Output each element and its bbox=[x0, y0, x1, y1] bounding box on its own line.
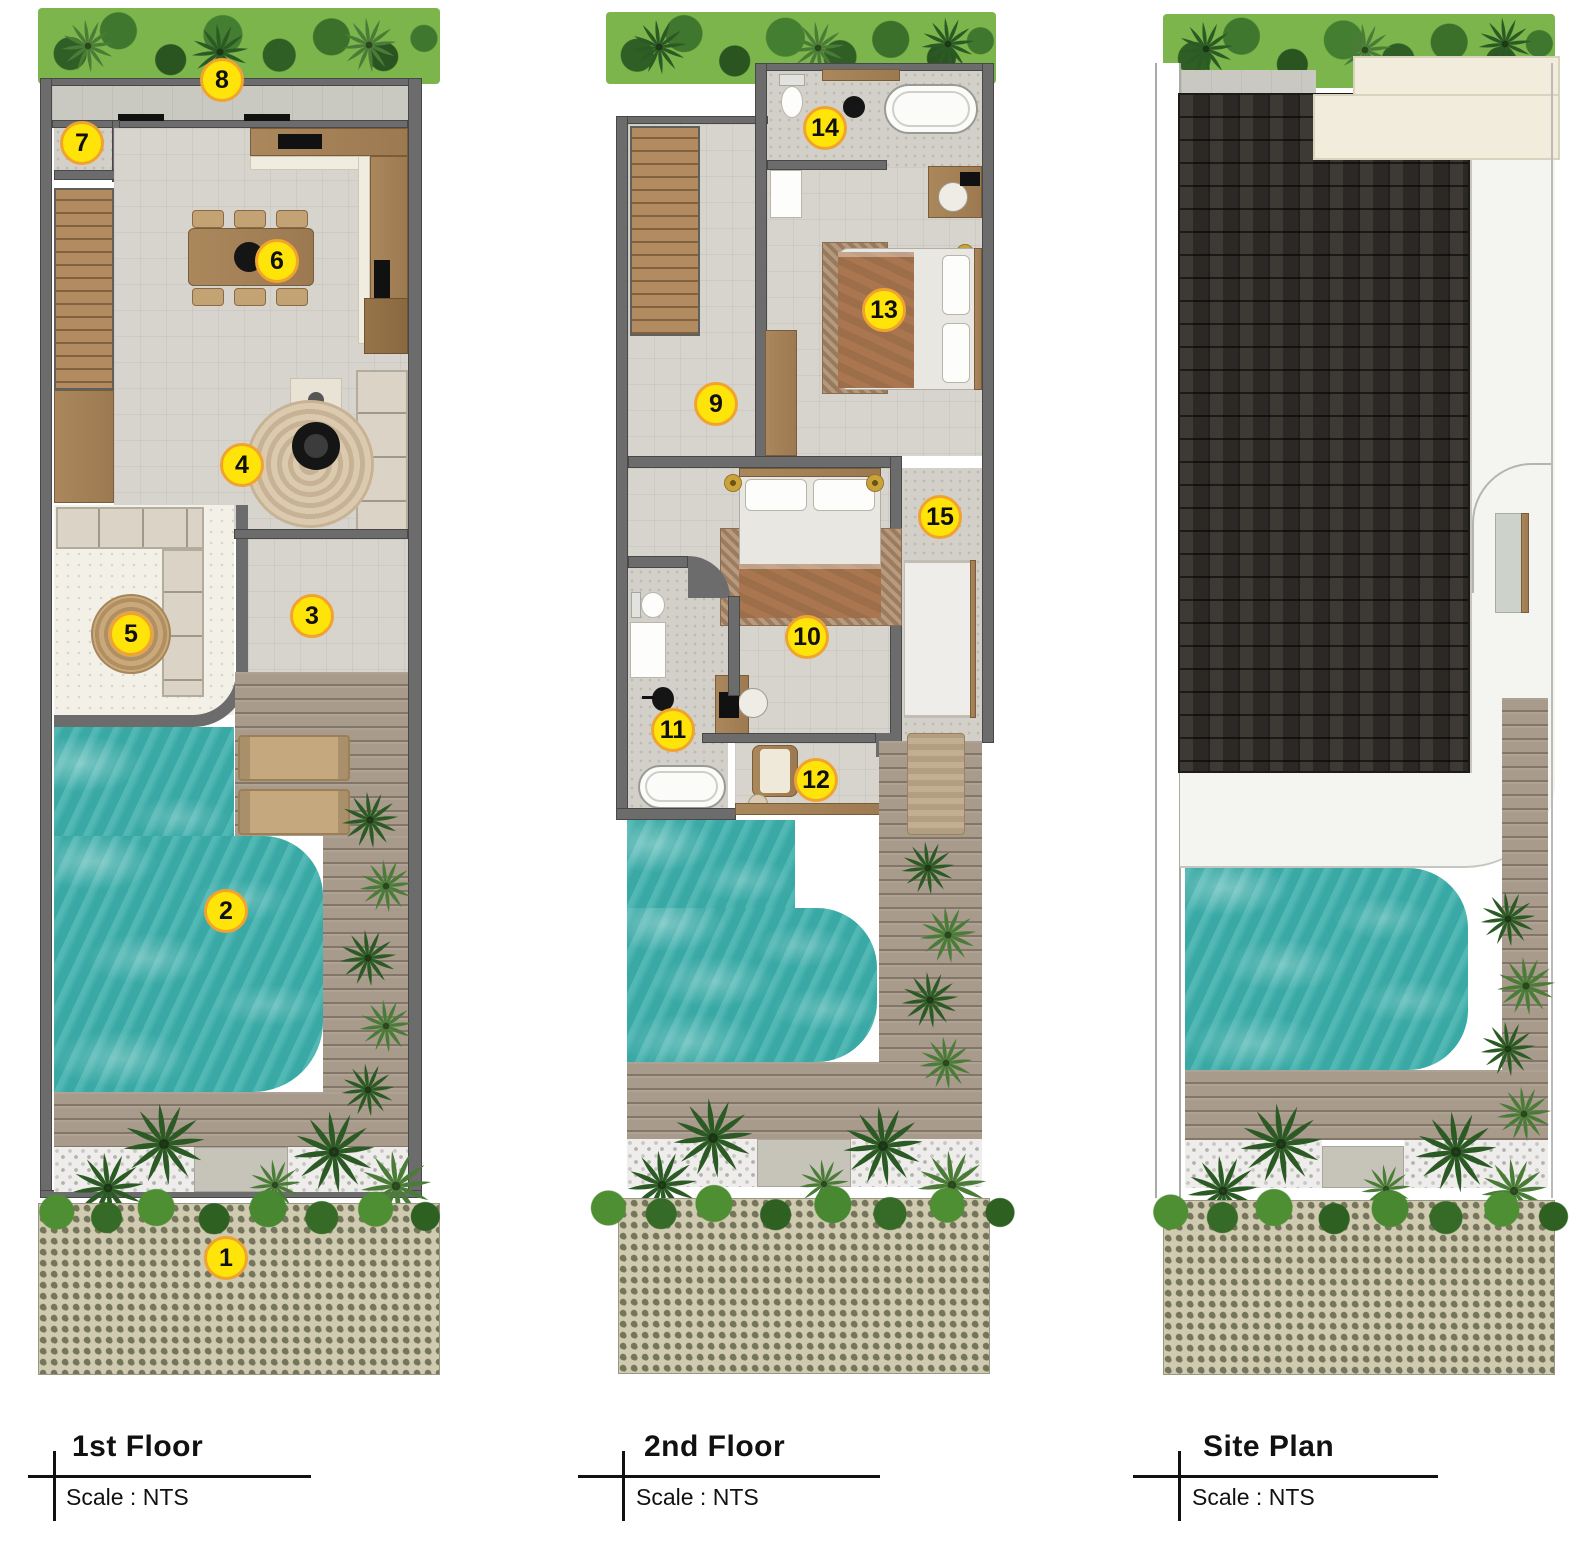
balcony-wall bbox=[702, 733, 876, 743]
wall-right bbox=[982, 63, 994, 743]
palm-plant-icon bbox=[338, 788, 402, 852]
dining-chair bbox=[192, 288, 224, 306]
bath-wall bbox=[628, 556, 688, 568]
palm-plant-icon bbox=[1477, 1018, 1539, 1080]
titleblock-rule-v bbox=[53, 1451, 56, 1521]
desk-chair bbox=[938, 182, 968, 212]
wall-top-left bbox=[616, 116, 768, 124]
toilet-tank bbox=[631, 592, 641, 618]
marker-1: 1 bbox=[204, 1236, 248, 1280]
palm-plant-icon bbox=[356, 856, 416, 916]
pendant-light-icon bbox=[866, 474, 884, 492]
room-wall bbox=[234, 529, 408, 539]
marker-11: 11 bbox=[651, 708, 695, 752]
laptop-icon bbox=[960, 172, 980, 186]
titleblock-site-plan: Site Plan Scale : NTS bbox=[1133, 1428, 1438, 1523]
basin-icon bbox=[843, 96, 865, 118]
marker-5: 5 bbox=[109, 612, 153, 656]
plan-first-floor: 8 7 6 4 5 3 2 1 bbox=[38, 8, 440, 1380]
panel-title: Site Plan bbox=[1203, 1430, 1334, 1464]
bathtub-inner bbox=[892, 91, 970, 127]
palm-plant-icon bbox=[628, 16, 690, 78]
wall-bottom bbox=[616, 808, 736, 820]
lounge-chair-cushion bbox=[304, 434, 328, 458]
swimming-pool bbox=[1185, 868, 1468, 1070]
pendant-light-icon bbox=[724, 474, 742, 492]
titleblock-rule-h bbox=[28, 1475, 311, 1478]
deck-rug bbox=[907, 733, 965, 835]
wall-left bbox=[616, 116, 628, 816]
flat-roof-band bbox=[1470, 113, 1555, 773]
vanity bbox=[630, 622, 666, 678]
bath-wall-side bbox=[728, 596, 740, 696]
bed-blanket bbox=[739, 564, 881, 618]
dining-chair bbox=[276, 210, 308, 228]
staircase bbox=[630, 126, 700, 336]
marker-15: 15 bbox=[918, 495, 962, 539]
marker-8: 8 bbox=[200, 58, 244, 102]
site-boundary-line bbox=[1551, 63, 1553, 1198]
scale-label: Scale : NTS bbox=[636, 1484, 759, 1511]
panel-title: 1st Floor bbox=[72, 1430, 203, 1464]
headboard bbox=[739, 468, 881, 477]
hedge-row bbox=[32, 1184, 446, 1240]
toilet-icon bbox=[781, 86, 803, 118]
dining-chair bbox=[276, 288, 308, 306]
marker-9: 9 bbox=[694, 382, 738, 426]
bath-shelf bbox=[822, 69, 900, 81]
scale-label: Scale : NTS bbox=[66, 1484, 189, 1511]
under-stair-storage bbox=[54, 390, 114, 503]
dining-chair bbox=[234, 210, 266, 228]
marker-7: 7 bbox=[60, 121, 104, 165]
toilet-tank bbox=[779, 74, 805, 86]
flat-roof-bottom bbox=[1180, 773, 1555, 868]
marker-3: 3 bbox=[290, 594, 334, 638]
titleblock-second-floor: 2nd Floor Scale : NTS bbox=[578, 1428, 880, 1523]
kitchen-counter-top bbox=[250, 128, 408, 156]
palm-plant-icon bbox=[898, 968, 962, 1032]
entry-door bbox=[1521, 513, 1529, 613]
wall-left bbox=[40, 78, 52, 1198]
palm-plant-icon bbox=[1493, 953, 1559, 1019]
titleblock-rule-v bbox=[1178, 1451, 1181, 1521]
sun-lounger bbox=[238, 735, 350, 781]
headboard bbox=[974, 248, 982, 390]
palm-plant-icon bbox=[1477, 888, 1539, 950]
canopy-roof-lower bbox=[1313, 94, 1560, 160]
titleblock-first-floor: 1st Floor Scale : NTS bbox=[28, 1428, 313, 1523]
palm-plant-icon bbox=[898, 838, 958, 898]
dining-chair bbox=[192, 210, 224, 228]
plan-site bbox=[1155, 8, 1565, 1380]
hedge-row bbox=[1145, 1184, 1575, 1240]
plan-second-floor: 14 13 9 15 10 11 12 bbox=[598, 8, 1012, 1380]
wall-interior-top bbox=[52, 120, 408, 128]
sliding-door-icon bbox=[244, 114, 290, 121]
pillow bbox=[745, 479, 807, 511]
armchair-cushion bbox=[760, 749, 790, 793]
palm-plant-icon bbox=[916, 903, 980, 967]
desk-chair bbox=[738, 688, 768, 718]
marker-10: 10 bbox=[785, 615, 829, 659]
main-roof bbox=[1178, 93, 1470, 773]
palm-plant-icon bbox=[356, 996, 416, 1056]
scale-label: Scale : NTS bbox=[1192, 1484, 1315, 1511]
marker-13: 13 bbox=[862, 288, 906, 332]
dining-chair bbox=[234, 288, 266, 306]
palm-plant-icon bbox=[336, 926, 400, 990]
staircase bbox=[54, 188, 114, 390]
swimming-pool-lower bbox=[54, 836, 323, 1092]
lounge-sofa-top bbox=[56, 507, 204, 549]
balcony-edge bbox=[735, 803, 900, 815]
palm-plant-icon bbox=[916, 1033, 976, 1093]
palm-plant-icon bbox=[1493, 1083, 1555, 1145]
bath-wall bbox=[767, 160, 887, 170]
hedge-row bbox=[582, 1180, 1022, 1236]
kitchen-cabinet bbox=[364, 298, 408, 354]
faucet-icon bbox=[642, 696, 654, 699]
swimming-pool-lower bbox=[627, 908, 877, 1062]
marker-2: 2 bbox=[204, 889, 248, 933]
bedroom-wall bbox=[628, 456, 902, 468]
pillow bbox=[942, 255, 970, 315]
shower-tray bbox=[770, 170, 802, 218]
toilet-icon bbox=[641, 592, 665, 618]
marker-12: 12 bbox=[794, 758, 838, 802]
palm-plant-icon bbox=[338, 14, 400, 76]
titleblock-rule-v bbox=[622, 1451, 625, 1521]
pillow bbox=[942, 323, 970, 383]
sun-lounger bbox=[238, 789, 350, 835]
bathtub-inner bbox=[645, 771, 718, 802]
wardrobe-unit bbox=[765, 330, 797, 456]
kitchen-countertop bbox=[250, 156, 370, 170]
store-room-wall-bottom bbox=[54, 170, 120, 180]
palm-plant-icon bbox=[58, 16, 118, 76]
wardrobe-edge bbox=[970, 560, 976, 718]
marker-14: 14 bbox=[803, 106, 847, 150]
marker-4: 4 bbox=[220, 443, 264, 487]
cooktop-icon bbox=[278, 134, 322, 149]
marker-6: 6 bbox=[255, 239, 299, 283]
panel-title: 2nd Floor bbox=[644, 1430, 785, 1464]
floorplan-sheet: 8 7 6 4 5 3 2 1 bbox=[0, 0, 1576, 1566]
wardrobe-closet bbox=[904, 560, 976, 718]
sliding-door-icon bbox=[118, 114, 164, 121]
